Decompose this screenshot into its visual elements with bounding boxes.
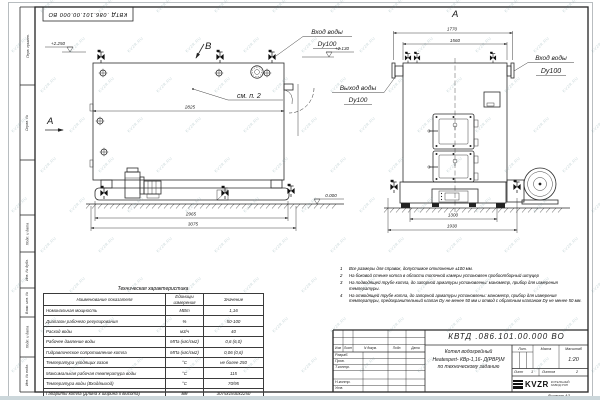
- valve-icon: [390, 180, 397, 193]
- pedestal-base: [400, 182, 506, 208]
- dim-1930: 1930: [447, 224, 458, 229]
- burner-fan-assembly: [125, 168, 161, 198]
- note-text: На подводящей трубе котла, до запорной а…: [349, 280, 588, 291]
- spec-unit: °С: [166, 357, 204, 367]
- spec-name: Расход воды: [44, 326, 166, 336]
- spec-name: Рабочее давление воды: [44, 337, 166, 347]
- mass-label: Масса: [533, 347, 559, 351]
- outlet-label: Выход воды: [340, 84, 377, 92]
- side-dimensions: 2825 2965 3075: [91, 105, 296, 232]
- spec-unit: МПа (кгс/см2): [166, 347, 204, 357]
- col-list: Лист: [343, 346, 353, 350]
- spec-value: 115: [204, 368, 264, 378]
- section-label-a: А: [46, 116, 53, 127]
- spec-unit: МВт: [166, 306, 204, 316]
- lug-icon: [96, 117, 105, 126]
- notes-block: 1Все размеры для справок, допустимое отк…: [340, 266, 588, 305]
- sheet-value: 1: [531, 370, 533, 374]
- spec-row: Температура воды (Вход/выход)°С70/95: [44, 378, 264, 388]
- dim-3075: 3075: [188, 222, 199, 227]
- spec-row: Максимальная рабочая температура воды°С1…: [44, 368, 264, 378]
- note-item: 3На подводящей трубе котла, до запорной …: [340, 280, 588, 291]
- product-name-line1: Котел водогрейный: [426, 349, 511, 357]
- spec-name: Максимальная рабочая температура воды: [44, 368, 166, 378]
- stamp-label: Перв. примен.: [26, 34, 30, 58]
- spec-unit: МПа (кгс/см2): [166, 337, 204, 347]
- doc-number: КВТД .086.101.00.000 ВО: [425, 332, 588, 341]
- inlet-front-label: Вход воды: [535, 54, 567, 62]
- product-name-line2: Heatexpert- КВр-1,16- Д(РВР)М: [426, 357, 511, 365]
- valve-icon: [100, 186, 107, 199]
- company-subtitle: КОТЕЛЬНЫЙ ЗАВОД РЭП: [551, 381, 570, 388]
- product-name-line3: по техническому заданию: [426, 364, 511, 372]
- doc-number-top-box: КВТД .086.101.00.000 ВО: [43, 7, 133, 21]
- note-text: Все размеры для справок, допустимое откл…: [349, 266, 588, 272]
- outlet-nozzle: [392, 63, 403, 78]
- flange-port: [251, 66, 263, 78]
- spec-row: Расход водым3/ч40: [44, 326, 264, 336]
- valve-icon: [268, 50, 275, 63]
- inlet-top-dn: Dy100: [318, 41, 337, 48]
- drain-valves: [100, 184, 294, 199]
- spec-name: Гидравлическое сопротивление котла: [44, 347, 166, 357]
- company-name: KVZR: [525, 380, 549, 389]
- row-tcontrol: Т.контр.: [335, 365, 350, 369]
- spec-value: 0,6 (6,0): [204, 337, 264, 347]
- elev-top: +2.250: [51, 41, 66, 46]
- lug-icon: [99, 69, 108, 78]
- spec-value: 50-100: [204, 316, 264, 326]
- inlet-nozzle: [507, 63, 514, 78]
- spec-value: 70/95: [204, 378, 264, 388]
- spec-unit: %: [166, 316, 204, 326]
- valve-icon: [490, 52, 496, 63]
- drawing-sheet: 2825 2965 3075 +2.250 +2.130: [0, 0, 600, 400]
- row-checked: Пров.: [335, 359, 345, 363]
- spec-header-value: Значение: [204, 294, 264, 306]
- valve-icon: [405, 52, 411, 63]
- elevation-marks: +2.250 +2.130 0.000: [45, 41, 354, 204]
- pipe-labels: Вход воды Dy100 Выход воды Dy100 Вход во…: [276, 28, 574, 105]
- stamp-cell-inv-podl: Инв. № подл.: [20, 357, 35, 392]
- sheets-label: Листов: [542, 370, 555, 374]
- kvzr-logo-icon: [513, 380, 523, 389]
- spec-unit: °С: [166, 378, 204, 388]
- spec-value: 1,16: [204, 306, 264, 316]
- dim-1560: 1560: [450, 38, 461, 43]
- product-name: Котел водогрейный Heatexpert- КВр-1,16- …: [426, 349, 511, 372]
- inlet-front-dn: Dy100: [541, 68, 561, 75]
- sheet-label: Лист: [514, 370, 523, 374]
- stamp-label: Инв. № подл.: [26, 363, 30, 385]
- note-ref: см. п. 2: [237, 93, 261, 100]
- row-ncontrol: Н.контр.: [335, 380, 351, 384]
- upper-door: [428, 114, 478, 149]
- doc-number-top: КВТД .086.101.00.000 ВО: [48, 11, 127, 17]
- note-number: 2: [340, 273, 349, 279]
- spec-row: Гидравлическое сопротивление котлаМПа (к…: [44, 347, 264, 357]
- dim-1770: 1770: [447, 27, 458, 32]
- spec-name: Номинальная мощность: [44, 306, 166, 316]
- row-developed: Разраб.: [335, 353, 348, 357]
- lit-label: Лит.: [512, 347, 533, 351]
- sheets-value: 2: [576, 370, 578, 374]
- spec-unit: м3/ч: [166, 326, 204, 336]
- valve-icon: [97, 50, 104, 63]
- spec-table-title: Техническая характеристика: [43, 286, 263, 292]
- note-number: 3: [340, 280, 349, 291]
- rear-door-swing: [284, 84, 314, 136]
- stamp-cell-vzam: Взам. инв. №: [20, 288, 35, 317]
- note-text: На отводящей трубе котла, до запорной ар…: [349, 293, 588, 304]
- boiler-body-side: [93, 63, 284, 180]
- side-panel: [484, 92, 500, 107]
- note-text: На боковой стенке котла в области топочн…: [349, 273, 588, 279]
- spec-header-units: Единицы измерения: [166, 294, 204, 306]
- company-logo: KVZR КОТЕЛЬНЫЙ ЗАВОД РЭП: [513, 378, 587, 391]
- stamp-label: Инв. № дубл.: [26, 259, 30, 281]
- spec-table: Наименование показателя Единицы измерени…: [43, 293, 264, 400]
- spec-unit: °С: [166, 368, 204, 378]
- company-line2: ЗАВОД РЭП: [551, 384, 570, 387]
- spec-name: Диапазон рабочего регулирования: [44, 316, 166, 326]
- row-approved: Утв.: [335, 386, 343, 390]
- sheet-edge-shadow: [0, 396, 600, 400]
- spec-header-row: Наименование показателя Единицы измерени…: [44, 294, 264, 306]
- lifting-lugs: [96, 69, 272, 157]
- spec-header-name: Наименование показателя: [44, 294, 166, 306]
- air-valves-top: [97, 50, 275, 63]
- view-label-b: B: [205, 41, 212, 52]
- col-sign: Подп.: [388, 346, 406, 350]
- skid-base: [95, 180, 289, 200]
- lug-icon: [100, 148, 109, 157]
- dim-2965: 2965: [185, 212, 197, 217]
- note-number: 1: [340, 266, 349, 272]
- spec-value: 0,06 (0,6): [204, 347, 264, 357]
- view-label-a: А: [451, 9, 458, 20]
- stamp-label: Справ. №: [26, 114, 30, 130]
- elev-ground: 0.000: [325, 193, 337, 198]
- spec-row: Диапазон рабочего регулирования%50-100: [44, 316, 264, 326]
- col-izm: Изм: [333, 346, 343, 350]
- stamp-cell-inv-dubl: Инв. № дубл.: [20, 252, 35, 288]
- spec-table-block: Техническая характеристика Наименование …: [43, 286, 263, 400]
- valve-icon: [221, 186, 228, 199]
- scale-value: 1:20: [559, 357, 588, 363]
- col-doc: N докум.: [353, 346, 388, 350]
- ground-hatch-side: [86, 204, 336, 209]
- stamp-label: Подп. и дата: [26, 222, 30, 245]
- spec-row: Температура уходящих газов°Сне более 250: [44, 357, 264, 367]
- lower-door: [428, 151, 478, 182]
- inlet-top-label: Вход воды: [311, 28, 343, 36]
- stamp-label: Подп. и дата: [26, 326, 30, 349]
- dim-1300: 1300: [448, 213, 459, 218]
- col-date: Дата: [406, 346, 425, 350]
- spec-value: не более 250: [204, 357, 264, 367]
- valve-icon: [216, 50, 223, 63]
- side-view: 2825 2965 3075 +2.250 +2.130: [45, 41, 354, 231]
- valve-icon: [287, 184, 294, 197]
- dim-2825: 2825: [184, 105, 196, 110]
- note-number: 4: [340, 293, 349, 304]
- stamp-cell-podp1: Подп. и дата: [20, 215, 35, 252]
- ground-hatch-front: [384, 208, 562, 213]
- note-item: 2На боковой стенке котла в области топоч…: [340, 273, 588, 279]
- spec-value: 40: [204, 326, 264, 336]
- scale-label: Масштаб: [559, 347, 588, 351]
- spec-row: Номинальная мощностьМВт1,16: [44, 306, 264, 316]
- lug-icon: [263, 69, 272, 78]
- stamp-label: Взам. инв. №: [26, 291, 30, 313]
- valve-icon: [513, 180, 520, 193]
- outlet-dn: Dy100: [349, 97, 368, 104]
- lug-icon: [215, 69, 224, 78]
- stamp-cell-sprav: Справ. №: [20, 85, 35, 160]
- stamp-cell-perv: Перв. примен.: [20, 7, 35, 85]
- note-item: 4На отводящей трубе котла, до запорной а…: [340, 293, 588, 304]
- valve-icon: [414, 52, 420, 63]
- spec-row: Рабочее давление водыМПа (кгс/см2)0,6 (6…: [44, 337, 264, 347]
- stamp-cell-podp2: Подп. и дата: [20, 317, 35, 357]
- front-view: А: [384, 9, 570, 233]
- note-item: 1Все размеры для справок, допустимое отк…: [340, 266, 588, 272]
- spec-name: Температура уходящих газов: [44, 357, 166, 367]
- spec-name: Температура воды (Вход/выход): [44, 378, 166, 388]
